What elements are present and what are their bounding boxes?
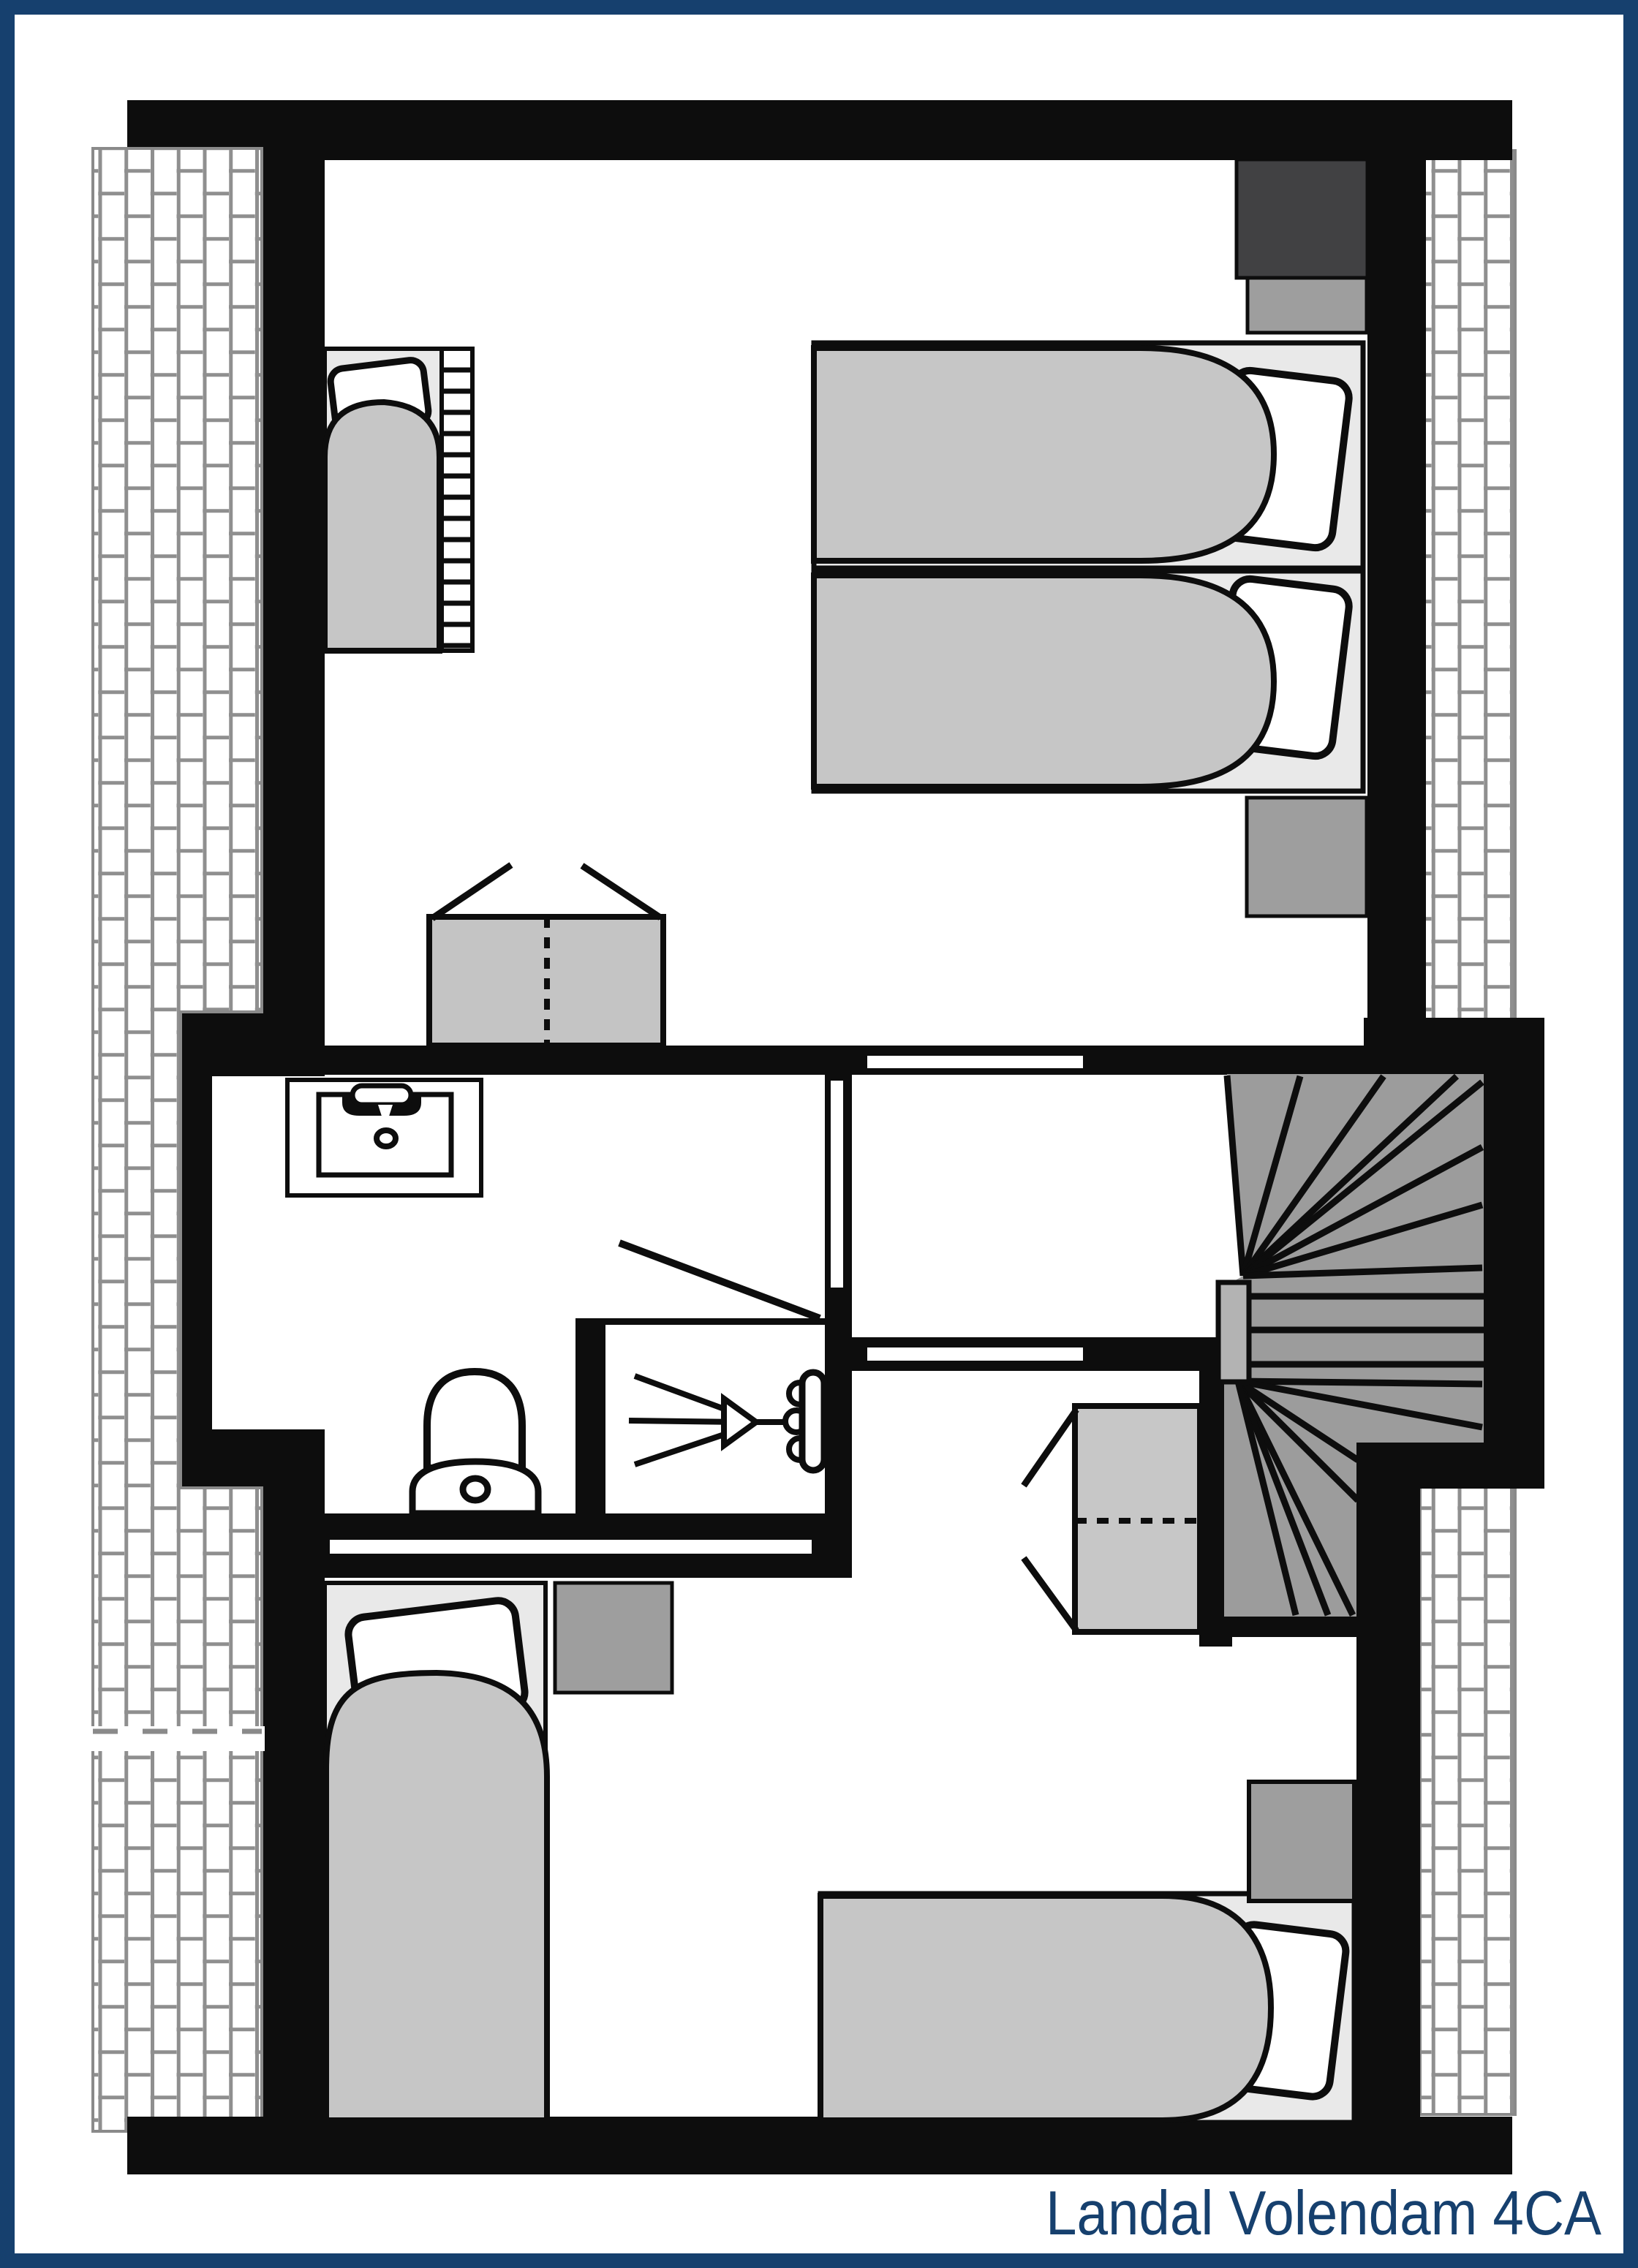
- svg-text:Landal Volendam 4CA: Landal Volendam 4CA: [1046, 2179, 1601, 2248]
